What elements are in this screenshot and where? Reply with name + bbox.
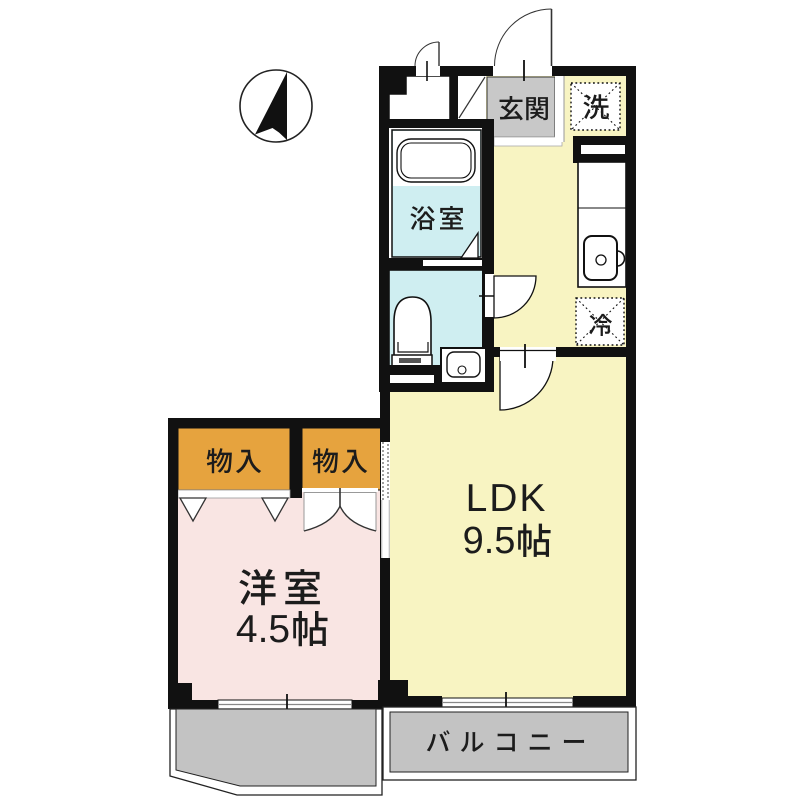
svg-text:9.5: 9.5 [463, 520, 516, 562]
svg-text:LDK: LDK [466, 477, 548, 520]
svg-text:4.5: 4.5 [236, 608, 290, 651]
